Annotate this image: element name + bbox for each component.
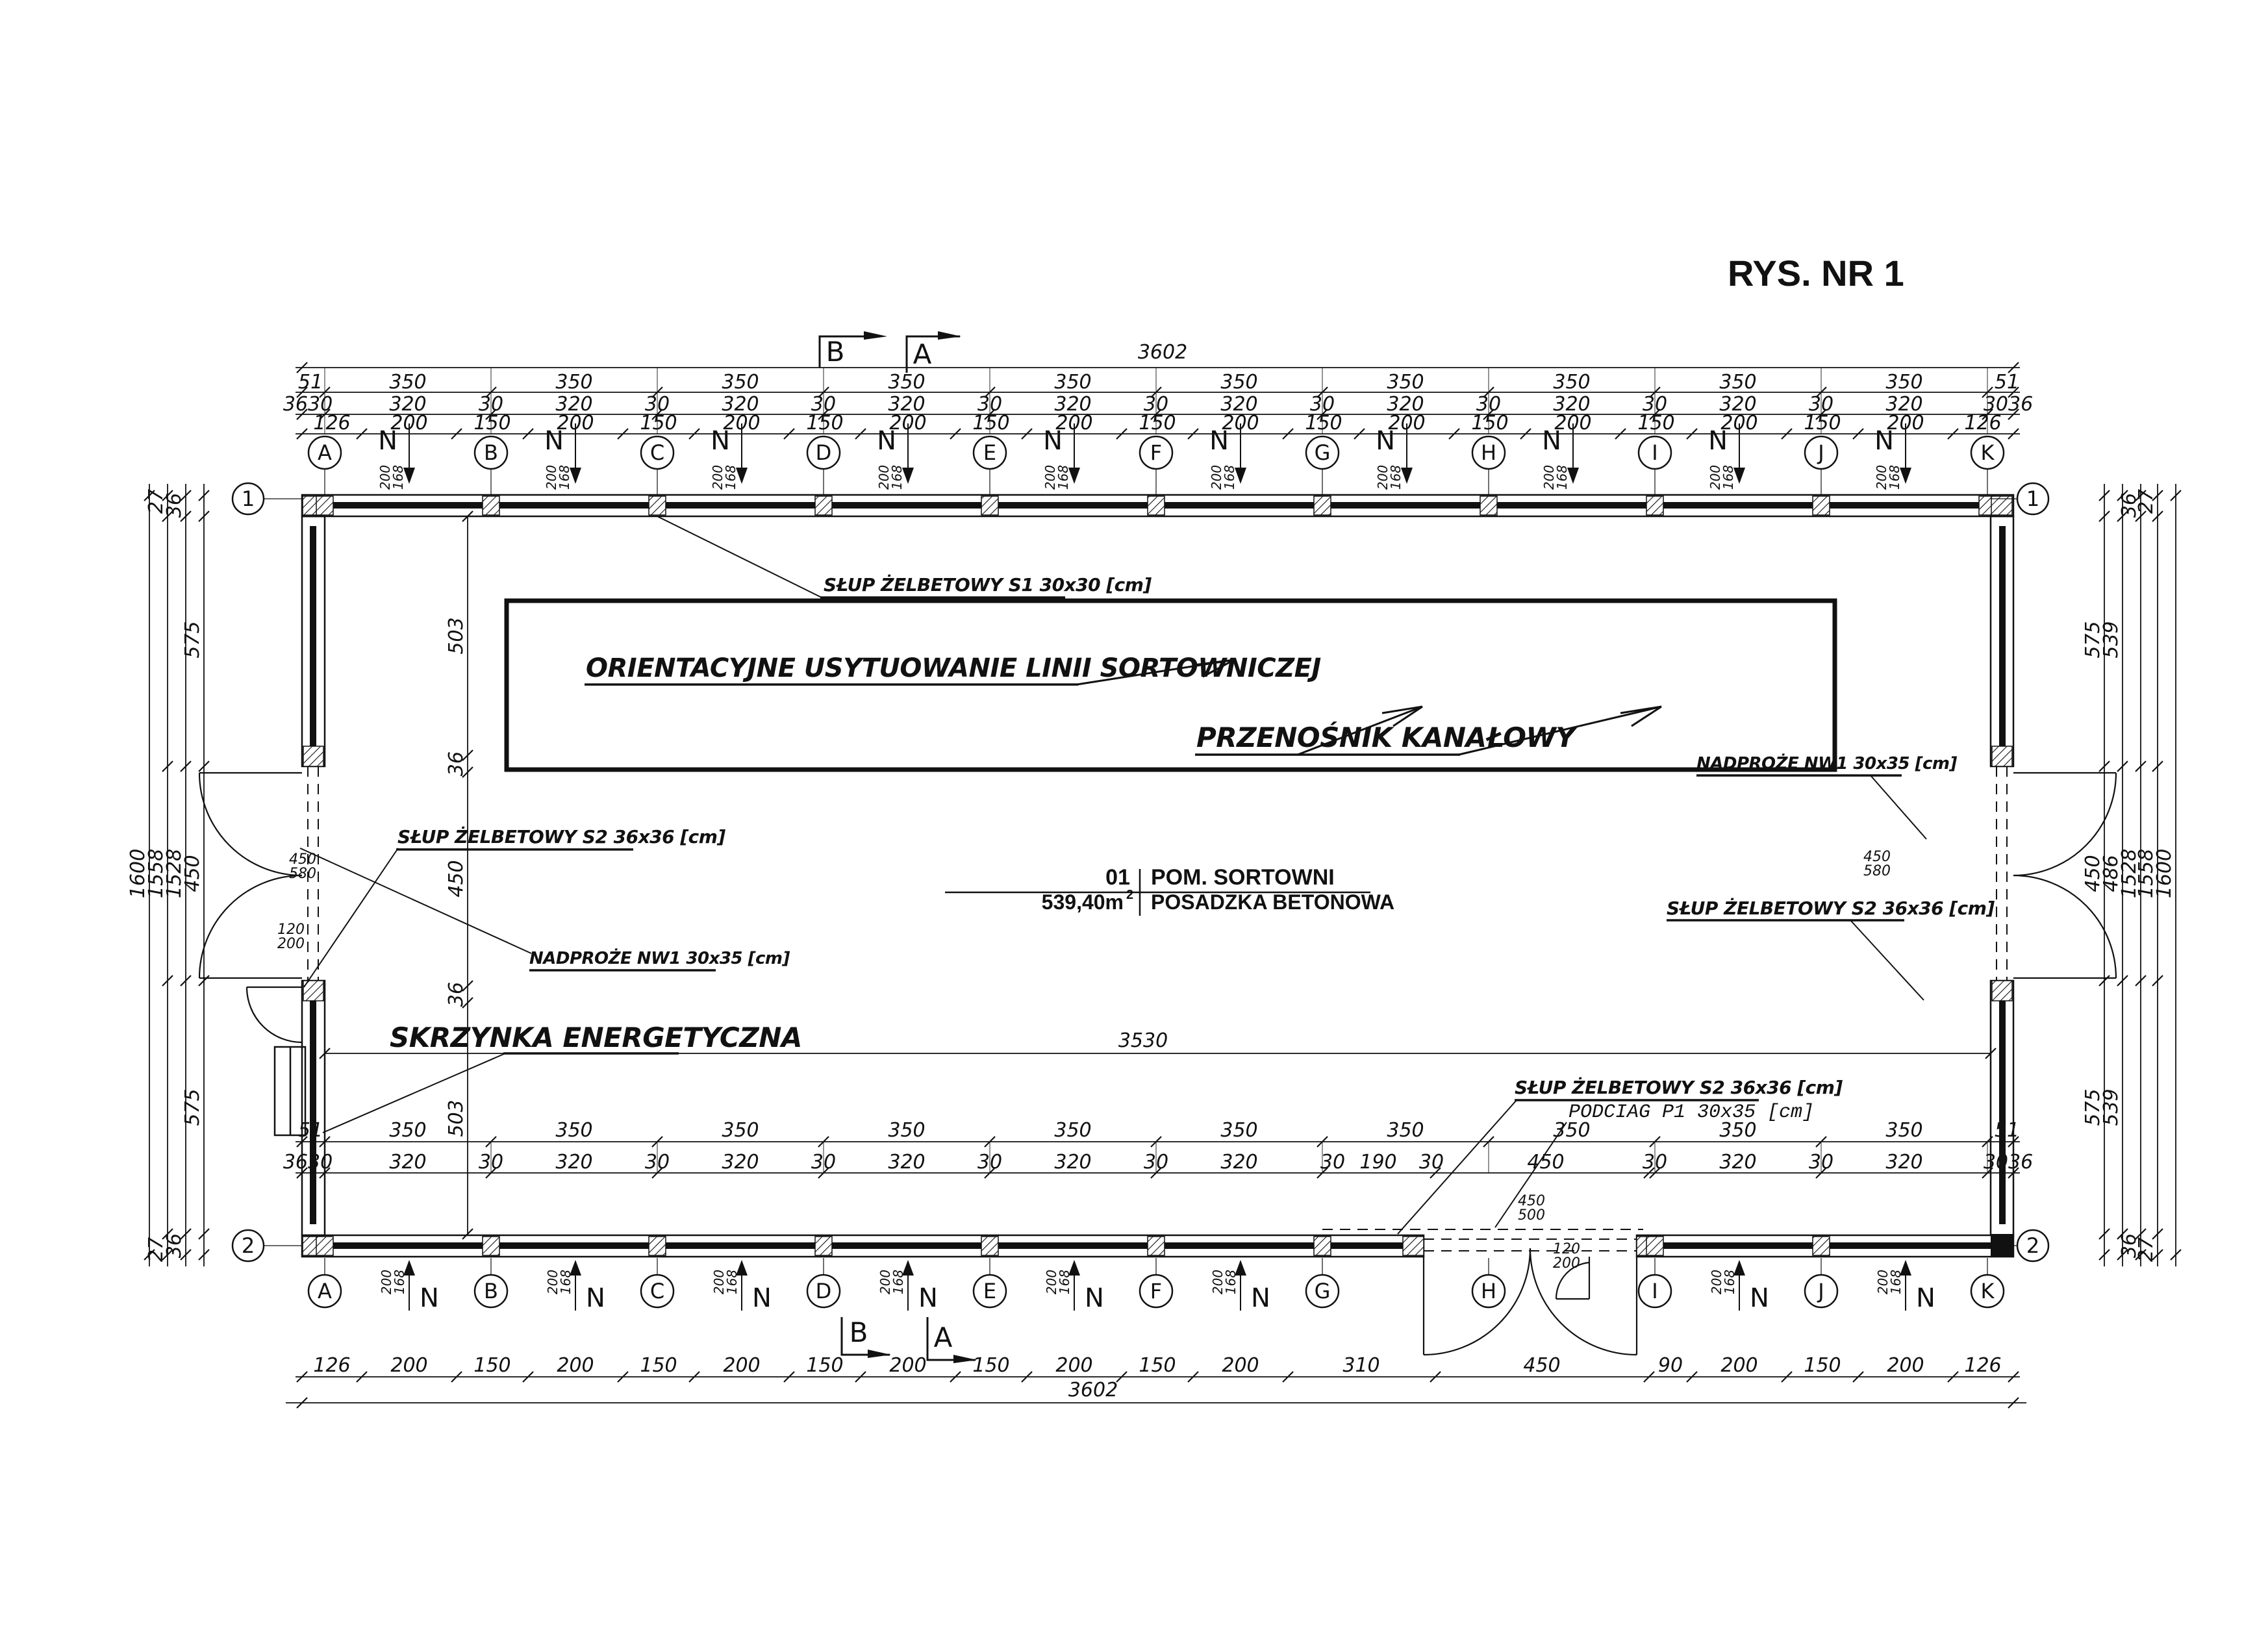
door-swings xyxy=(199,773,2116,1355)
window-size-h: 168 xyxy=(1887,465,1902,490)
dim-label: 310 xyxy=(1342,1354,1380,1377)
window-marker-letter: N xyxy=(1251,1283,1270,1313)
window-size-h: 168 xyxy=(1554,465,1570,490)
grid-letter-row-1: 1 xyxy=(2026,486,2039,511)
grid-letter-h: H xyxy=(1481,1279,1496,1303)
grid-letter-e: E xyxy=(983,1279,996,1303)
dim-label: 36 xyxy=(445,751,468,776)
dim-label: 350 xyxy=(1054,1119,1091,1142)
dim-label: 200 xyxy=(723,1354,760,1377)
dim-label: 150 xyxy=(806,412,843,434)
dim-label: 3530 xyxy=(1118,1029,1168,1052)
window-size-h: 168 xyxy=(890,1270,906,1294)
grid-letter-h: H xyxy=(1481,440,1496,465)
dim-label: 150 xyxy=(972,412,1009,434)
dim-label: 27 xyxy=(2135,489,2158,514)
label-nadproze-left: NADPROŻE NW1 30x35 [cm] xyxy=(529,948,790,968)
dim-label: 575 xyxy=(181,1088,204,1125)
dim-label: 200 xyxy=(1720,1354,1758,1377)
window-marker-letter: N xyxy=(544,426,564,456)
dim-label: 350 xyxy=(1719,1119,1756,1142)
dim-label: 126 xyxy=(313,1354,350,1377)
window-marker-letter: N xyxy=(1874,426,1894,456)
room-area-exponent: 2 xyxy=(1126,888,1133,902)
dim-label: 450 xyxy=(1527,1151,1564,1174)
dim-label: 200 xyxy=(1055,1354,1092,1377)
section-letter-a-top: A xyxy=(913,338,932,370)
dim-label: 350 xyxy=(888,1119,925,1142)
dim-label: 30 xyxy=(1320,1151,1345,1174)
grid-letter-d: D xyxy=(816,1279,832,1303)
dim-label: 503 xyxy=(445,1100,468,1137)
dim-label: 200 xyxy=(557,1354,594,1377)
window-size-h: 168 xyxy=(558,1270,573,1294)
dim-label: 190 xyxy=(1359,1151,1396,1174)
window-size-h: 168 xyxy=(1055,465,1071,490)
label-slup-s2-right: SŁUP ŻELBETOWY S2 36x36 [cm] xyxy=(1667,897,1995,919)
dim-label: 350 xyxy=(1553,1119,1590,1142)
grid-letter-k: K xyxy=(1981,1279,1995,1303)
dim-label: 51 xyxy=(1995,1119,2019,1142)
label-slup-s1: SŁUP ŻELBETOWY S1 30x30 [cm] xyxy=(824,573,1152,596)
dim-label: 150 xyxy=(1139,1354,1176,1377)
dim-label: 36 xyxy=(445,982,468,1007)
window-size-h: 168 xyxy=(390,465,406,490)
left-small-door-arc xyxy=(247,987,302,1042)
dim-label: 320 xyxy=(1220,1151,1257,1174)
dim-label: 126 xyxy=(1964,412,2001,434)
dim-label: 3602 xyxy=(1138,341,1187,364)
dim-label: 150 xyxy=(1804,1354,1841,1377)
dim-label: 580 xyxy=(1863,863,1891,879)
dim-label: 350 xyxy=(1885,371,1922,394)
grid-letter-row-2: 2 xyxy=(2026,1233,2039,1258)
dim-label: 350 xyxy=(1054,371,1091,394)
grid-letter-e: E xyxy=(983,440,996,465)
room-name: POM. SORTOWNI xyxy=(1151,865,1335,890)
section-arrow xyxy=(864,331,887,340)
right-wall-stripe-upper xyxy=(1999,526,2006,757)
dim-label: 350 xyxy=(1387,1119,1424,1142)
grid-letter-b: B xyxy=(484,440,498,465)
label-przenosnik: PRZENOŚNIK KANAŁOWY xyxy=(1196,721,1578,753)
window-size-h: 168 xyxy=(1388,465,1404,490)
dim-label: 150 xyxy=(473,1354,510,1377)
grid-letter-g: G xyxy=(1315,1279,1331,1303)
sheet-title: RYS. NR 1 xyxy=(1728,253,1904,294)
dim-label: 350 xyxy=(1553,371,1590,394)
dim-label: 350 xyxy=(1220,1119,1257,1142)
section-letter-a-bottom: A xyxy=(934,1322,953,1353)
dim-label: 350 xyxy=(389,371,426,394)
section-letter-b-bottom: B xyxy=(850,1316,868,1348)
window-size-h: 168 xyxy=(1222,465,1237,490)
grid-letter-row-2: 2 xyxy=(242,1233,255,1258)
dim-label: 1600 xyxy=(2153,849,2176,898)
dim-label: 500 xyxy=(1518,1207,1545,1224)
dim-label: 350 xyxy=(1719,371,1756,394)
window-size-h: 168 xyxy=(724,1270,740,1294)
grid-letter-k: K xyxy=(1981,440,1995,465)
window-size-h: 168 xyxy=(557,465,572,490)
window-marker-letter: N xyxy=(1750,1283,1769,1313)
window-marker-letter: N xyxy=(1376,426,1395,456)
window-size-h: 168 xyxy=(392,1270,407,1294)
dim-label: 150 xyxy=(1305,412,1342,434)
dim-label: 150 xyxy=(473,412,510,434)
grid-letter-c: C xyxy=(650,1279,664,1303)
dim-label: 320 xyxy=(1885,1151,1922,1174)
dim-label: 3602 xyxy=(1068,1379,1118,1402)
grid-letter-i: I xyxy=(1652,1279,1657,1303)
window-marker-letter: N xyxy=(586,1283,605,1313)
dim-label: 503 xyxy=(445,617,468,654)
dim-label: 30 xyxy=(1419,1151,1444,1174)
dim-label: 320 xyxy=(1719,1151,1756,1174)
dim-label: 350 xyxy=(1220,371,1257,394)
dim-label: 150 xyxy=(972,1354,1009,1377)
label-skrzynka: SKRZYNKA ENERGETYCZNA xyxy=(390,1022,802,1053)
label-slup-s2-bottom: SŁUP ŻELBETOWY S2 36x36 [cm] xyxy=(1515,1076,1843,1098)
dim-label: 580 xyxy=(289,866,316,882)
window-marker-letter: N xyxy=(711,426,730,456)
dim-label: 200 xyxy=(390,1354,427,1377)
grid-letter-a: A xyxy=(318,440,332,465)
dim-label: 200 xyxy=(889,1354,926,1377)
dim-label: 51 xyxy=(298,371,323,394)
dim-label: 350 xyxy=(555,371,592,394)
dim-label: 150 xyxy=(640,412,677,434)
window-marker-letter: N xyxy=(1916,1283,1935,1313)
floor-plan-drawing: RYS. NR 1 xyxy=(0,0,2268,1647)
window-marker-letter: N xyxy=(1209,426,1229,456)
right-wall-stripe-lower xyxy=(1999,990,2006,1224)
room-label: 01 POM. SORTOWNI 539,40m 2 POSADZKA BETO… xyxy=(945,865,1394,916)
drawing-sheet: RYS. NR 1 xyxy=(0,0,2268,1647)
window-size-h: 168 xyxy=(1722,1270,1737,1294)
grid-letter-g: G xyxy=(1315,440,1331,465)
dim-label: 150 xyxy=(640,1354,677,1377)
dim-label: 200 xyxy=(1222,1354,1259,1377)
left-wall-stripe-upper xyxy=(310,526,316,757)
grid-letter-row-1: 1 xyxy=(242,486,255,511)
grid-letter-a: A xyxy=(318,1279,332,1303)
window-marker-letter: N xyxy=(752,1283,772,1313)
dim-label: 90 xyxy=(1658,1354,1683,1377)
dim-label: 320 xyxy=(389,1151,426,1174)
dim-label: 200 xyxy=(277,936,305,952)
dim-label: 350 xyxy=(555,1119,592,1142)
dim-label: 320 xyxy=(722,1151,759,1174)
dim-label: 450 xyxy=(445,860,468,897)
dim-label: 450 xyxy=(181,855,204,892)
dim-label: 200 xyxy=(1553,1255,1580,1272)
dim-label: 150 xyxy=(1139,412,1176,434)
dim-label: 450 xyxy=(1523,1354,1560,1377)
label-slup-s2-left: SŁUP ŻELBETOWY S2 36x36 [cm] xyxy=(397,825,725,848)
window-size-h: 168 xyxy=(723,465,738,490)
dim-label: 150 xyxy=(1637,412,1674,434)
grid-letter-j: J xyxy=(1817,1279,1824,1303)
dim-label: 126 xyxy=(1964,1354,2001,1377)
grid-letter-c: C xyxy=(650,440,664,465)
dim-label: 150 xyxy=(1471,412,1508,434)
grid-letter-f: F xyxy=(1150,440,1162,465)
label-orientacyjne: ORIENTACYJNE USYTUOWANIE LINII SORTOWNIC… xyxy=(586,653,1321,683)
label-nadproze-right: NADPROŻE NW1 30x35 [cm] xyxy=(1696,753,1957,773)
room-number: 01 xyxy=(1105,865,1130,890)
dim-label: 539 xyxy=(2100,621,2123,658)
dim-label: 51 xyxy=(298,1119,323,1142)
dim-label: 350 xyxy=(888,371,925,394)
window-size-h: 168 xyxy=(1223,1270,1239,1294)
window-size-h: 168 xyxy=(1057,1270,1072,1294)
dim-label: 539 xyxy=(2100,1088,2123,1125)
dim-label: 350 xyxy=(1387,371,1424,394)
window-marker-letter: N xyxy=(1542,426,1561,456)
dim-label: 200 xyxy=(1887,1354,1924,1377)
room-area: 539,40m xyxy=(1042,890,1124,914)
dim-label: 3630 xyxy=(283,1151,333,1174)
dim-label: 150 xyxy=(1804,412,1841,434)
window-size-h: 168 xyxy=(1720,465,1736,490)
section-letter-b-top: B xyxy=(826,336,845,368)
grid-letter-i: I xyxy=(1652,440,1657,465)
left-wall-stripe-lower xyxy=(310,990,316,1224)
window-marker-letter: N xyxy=(1708,426,1728,456)
window-marker-letter: N xyxy=(1043,426,1063,456)
grid-letter-d: D xyxy=(816,440,832,465)
window-size-h: 168 xyxy=(1888,1270,1904,1294)
dim-label: 350 xyxy=(722,371,759,394)
dim-label: 350 xyxy=(389,1119,426,1142)
dim-label: 150 xyxy=(806,1354,843,1377)
window-marker-letter: N xyxy=(420,1283,439,1313)
window-size-h: 168 xyxy=(889,465,905,490)
window-marker-letter: N xyxy=(378,426,397,456)
dim-label: 350 xyxy=(1885,1119,1922,1142)
room-floor: POSADZKA BETONOWA xyxy=(1151,890,1394,914)
left-gate-upper-leaf-arc xyxy=(199,773,302,875)
window-marker-letter: N xyxy=(877,426,896,456)
window-marker-letter: N xyxy=(1085,1283,1104,1313)
dim-label: 320 xyxy=(888,1151,925,1174)
grid-letter-f: F xyxy=(1150,1279,1162,1303)
dim-label: 320 xyxy=(1054,1151,1091,1174)
dim-label: 350 xyxy=(722,1119,759,1142)
grid-letter-b: B xyxy=(484,1279,498,1303)
dim-label: 320 xyxy=(555,1151,592,1174)
window-marker-letter: N xyxy=(918,1283,938,1313)
grid-letter-j: J xyxy=(1817,440,1824,465)
label-podciag: PODCIAG P1 30x35 [cm] xyxy=(1569,1101,1814,1124)
dim-label: 126 xyxy=(313,412,350,434)
dim-label: 575 xyxy=(181,621,204,658)
